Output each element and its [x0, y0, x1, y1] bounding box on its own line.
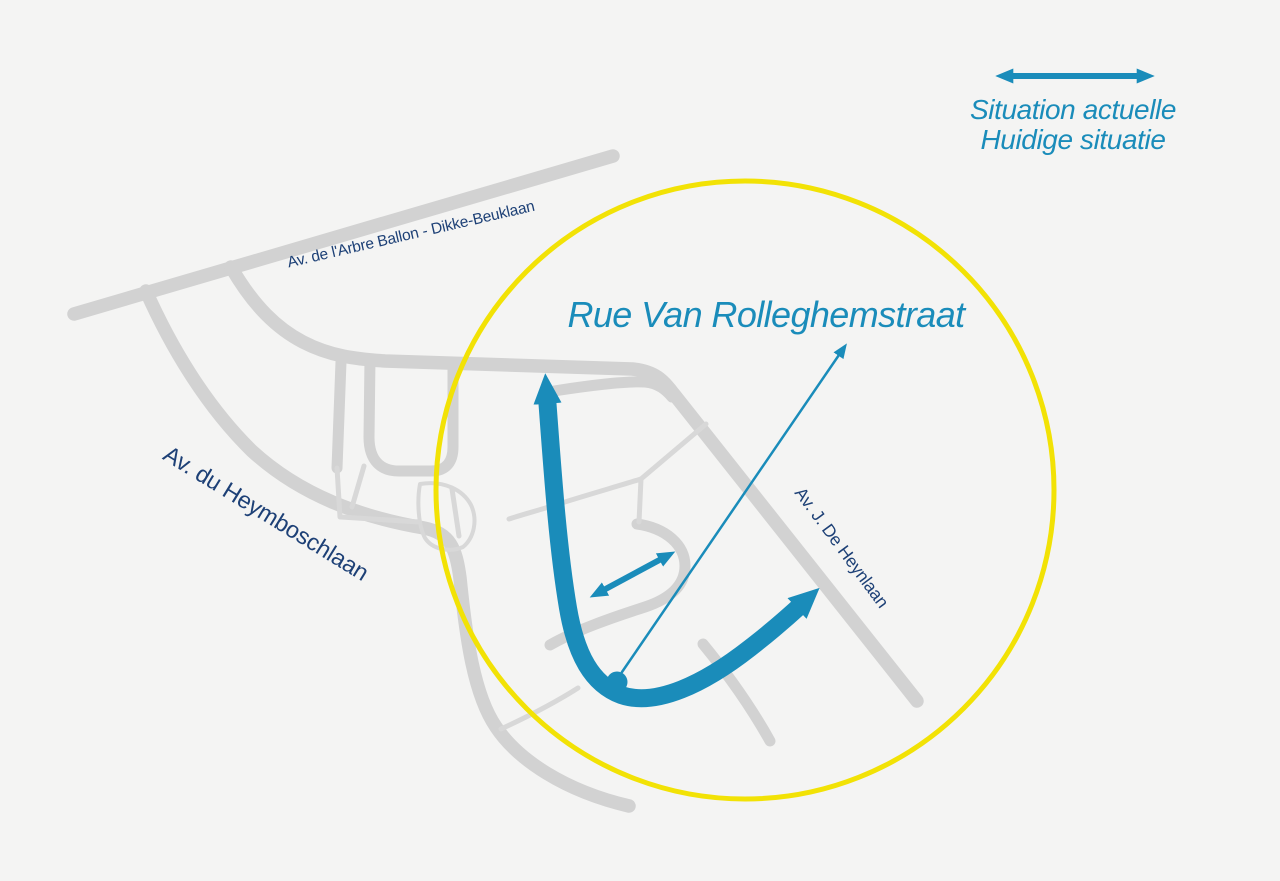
- two-way-traffic-arrow-small: [600, 557, 665, 592]
- road-segment: [337, 362, 341, 468]
- road-segment: [639, 479, 641, 522]
- street-label-rolleghemstraat: Rue Van Rolleghemstraat: [567, 294, 967, 335]
- current-situation-arrows: [547, 352, 841, 698]
- road-arbre-ballon: [74, 156, 613, 314]
- legend-line-nl: Huidige situatie: [980, 124, 1165, 155]
- road-segment: [452, 489, 459, 536]
- map-canvas: Av. de l'Arbre Ballon - Dikke-Beuklaan A…: [0, 0, 1280, 881]
- road-segment: [341, 517, 419, 522]
- road-segment: [641, 424, 706, 479]
- legend: Situation actuelle Huidige situatie: [970, 76, 1176, 155]
- road-slip-segment: [554, 382, 672, 397]
- road-segment: [509, 479, 641, 519]
- situation-map-svg: Av. de l'Arbre Ballon - Dikke-Beuklaan A…: [0, 0, 1280, 881]
- road-segment: [352, 466, 364, 507]
- leader-dot: [607, 672, 628, 693]
- street-label-heynlaan: Av. J. De Heynlaan: [791, 483, 893, 611]
- legend-line-fr: Situation actuelle: [970, 94, 1176, 125]
- road-segment: [337, 468, 340, 517]
